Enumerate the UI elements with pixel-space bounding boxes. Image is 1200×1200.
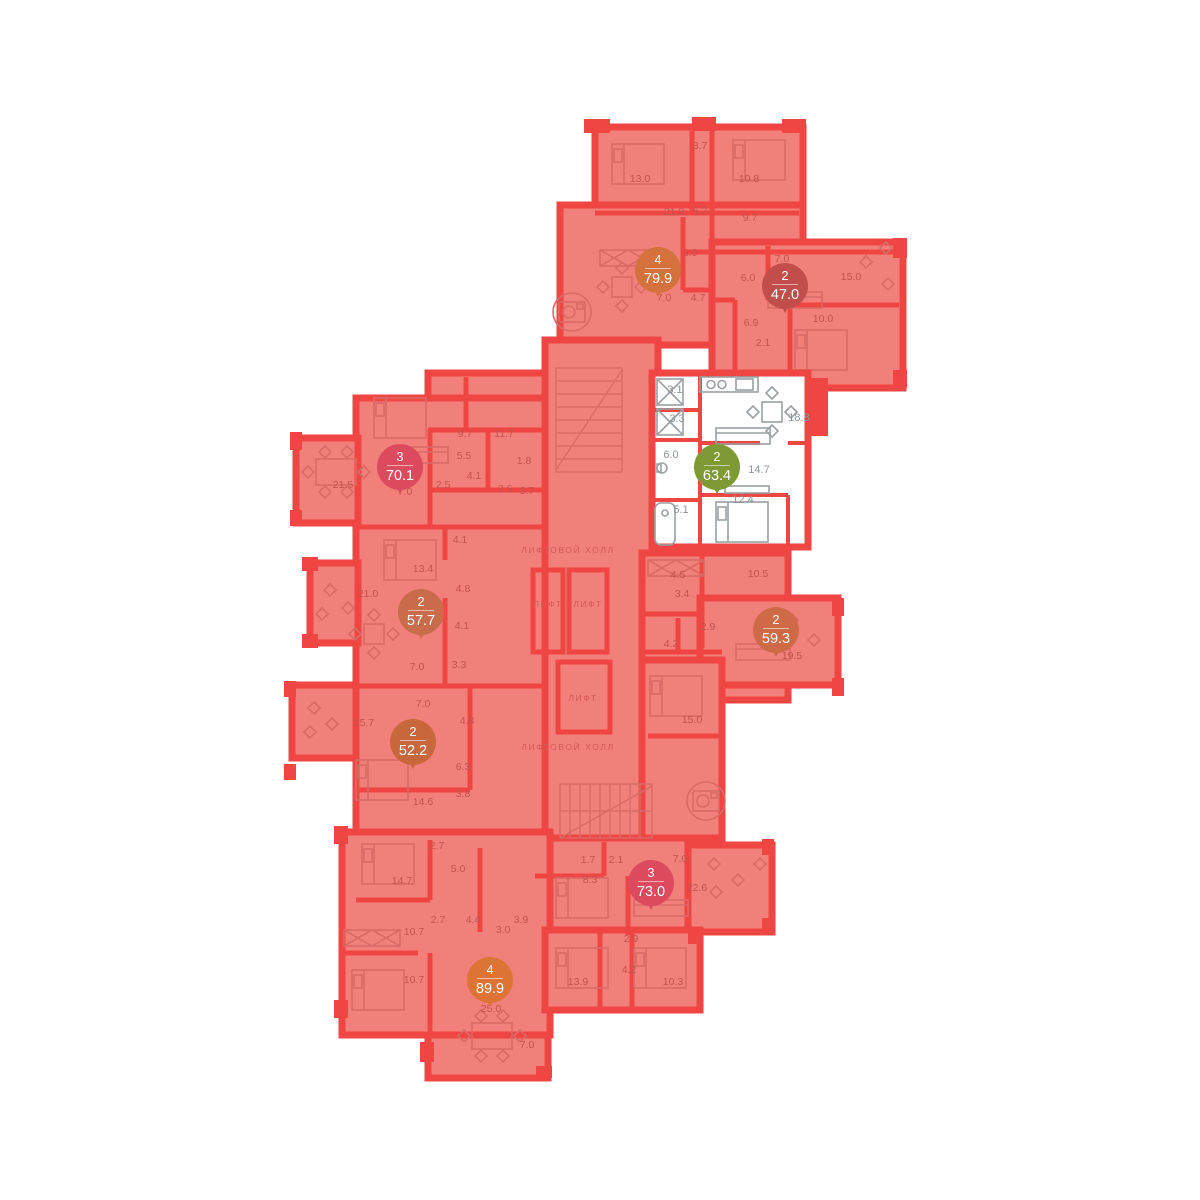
room-area-label: 10.8	[739, 173, 760, 185]
floor-plan-canvas: 13.03.710.821.86.29.73.07.04.77.06.015.0…	[0, 0, 1200, 1200]
room-area-label: 3.0	[683, 247, 698, 259]
room-area-label: 5.0	[451, 863, 466, 875]
room-area-label: 10.7	[404, 974, 425, 986]
room-area-label: 7.0	[410, 661, 425, 673]
elevator-label: ЛИФТ	[573, 599, 602, 609]
room-area-label: 2.9	[624, 933, 639, 945]
room-area-label: 4.2	[622, 964, 637, 976]
badge-area-value: 47.0	[771, 287, 799, 303]
room-area-label: 10.3	[663, 976, 684, 988]
room-area-label: 11.7	[494, 428, 514, 440]
badge-area-value: 59.3	[762, 631, 790, 647]
room-area-label: 9.7	[458, 428, 473, 440]
room-area-label: 3.9	[514, 914, 529, 926]
room-area-label: 5.5	[457, 450, 472, 462]
room-area-label: 6.9	[744, 317, 759, 329]
room-area-label: 6.2	[693, 205, 708, 217]
room-area-label: 6.0	[663, 449, 678, 461]
room-area-label: 1.7	[581, 854, 596, 866]
elevator-label: ЛИФТ	[533, 599, 562, 609]
badge-area-value: 73.0	[637, 884, 665, 900]
room-area-label: 5.1	[673, 504, 688, 516]
room-area-label: 21.5	[333, 479, 354, 491]
elevator-label: ЛИФТ	[568, 693, 597, 703]
room-area-label: 15.0	[682, 714, 703, 726]
room-area-label: 14.7	[392, 875, 413, 887]
room-area-label: 4.7	[691, 292, 706, 304]
badge-area-value: 63.4	[703, 468, 731, 484]
badge-area-value: 52.2	[399, 743, 427, 759]
room-area-label: 10.7	[404, 926, 425, 938]
room-area-label: 6.0	[741, 272, 756, 284]
badge-room-count: 3	[397, 450, 404, 464]
badge-room-count: 2	[782, 269, 789, 283]
badge-room-count: 2	[773, 613, 780, 627]
room-area-label: 3.8	[456, 788, 471, 800]
room-area-label: 2.6	[498, 483, 513, 495]
room-area-label: 21.0	[358, 588, 379, 600]
room-area-label: 4.1	[455, 620, 470, 632]
room-area-label: 13.0	[630, 173, 651, 185]
room-area-label: 13.9	[568, 976, 589, 988]
room-area-label: 15.7	[354, 717, 375, 729]
room-area-label: 2.7	[431, 914, 446, 926]
room-area-label: 22.6	[687, 882, 708, 894]
balcony	[292, 685, 356, 758]
room-area-label: 18.8	[788, 412, 809, 424]
room-area-label: 4.2	[664, 638, 679, 650]
room-area-label: 13.4	[413, 563, 434, 575]
badge-room-count: 2	[714, 450, 721, 464]
balcony	[310, 563, 358, 643]
room-area-label: 3.0	[496, 924, 511, 936]
badge-room-count: 3	[648, 866, 655, 880]
room-area-label: 3.7	[693, 140, 708, 152]
badge-area-value: 79.9	[644, 271, 672, 287]
room-area-label: 2.1	[756, 337, 771, 349]
room-area-label: 3.3	[669, 413, 684, 425]
room-area-label: 21.8	[664, 206, 685, 218]
room-area-label: 3.4	[675, 588, 690, 600]
room-area-label: 2.5	[436, 479, 451, 491]
room-area-label: 8.3	[583, 874, 598, 886]
room-area-label: 4.1	[453, 534, 468, 546]
floor-plan-svg: 13.03.710.821.86.29.73.07.04.77.06.015.0…	[0, 0, 1200, 1200]
room-area-label: 6.3	[456, 761, 471, 773]
badge-room-count: 2	[418, 595, 425, 609]
room-area-label: 19.5	[782, 650, 803, 662]
room-area-label: 10.0	[813, 313, 834, 325]
room-area-label: 3.7	[520, 485, 535, 497]
room-area-label: 7.0	[416, 698, 431, 710]
room-area-label: 15.0	[841, 271, 862, 283]
room-area-label: 4.4	[466, 914, 481, 926]
badge-area-value: 70.1	[386, 468, 414, 484]
room-area-label: 2.7	[430, 840, 445, 852]
room-area-label: 4.1	[467, 470, 482, 482]
room-area-label: 9.7	[743, 212, 758, 224]
badge-room-count: 4	[487, 963, 494, 977]
elevator-label: ЛИФТОВОЙ ХОЛЛ	[521, 741, 614, 752]
room-area-label: 10.5	[748, 568, 769, 580]
room-area-label: 12.4	[732, 494, 753, 506]
badge-room-count: 4	[655, 253, 662, 267]
badge-area-value: 89.9	[476, 981, 504, 997]
elevator-label: ЛИФТОВОЙ ХОЛЛ	[521, 544, 614, 555]
room-area-label: 14.7	[748, 464, 769, 476]
room-area-label: 1.8	[517, 455, 532, 467]
room-area-label: 14.6	[413, 796, 434, 808]
badge-room-count: 2	[410, 725, 417, 739]
room-area-label: 4.8	[460, 715, 475, 727]
room-area-label: 4.8	[456, 583, 471, 595]
room-area-label: 7.0	[673, 853, 688, 865]
room-area-label: 4.5	[671, 569, 686, 581]
room-area-label: 2.9	[701, 621, 716, 633]
room-area-label: 3.3	[452, 659, 467, 671]
room-area-label: 3.1	[667, 384, 682, 396]
room-area-label: 7.0	[520, 1039, 535, 1051]
room-area-label: 2.1	[609, 854, 624, 866]
badge-area-value: 57.7	[407, 613, 435, 629]
